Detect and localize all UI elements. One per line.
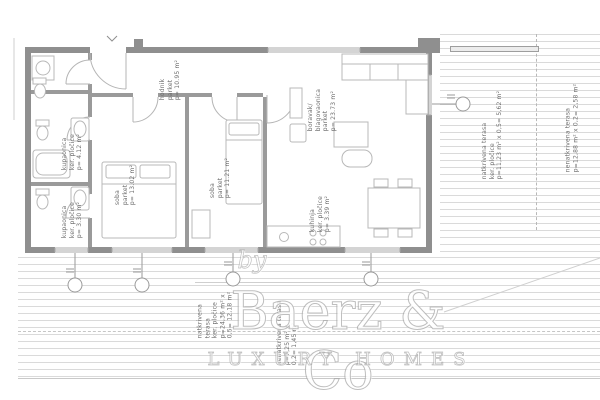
marker-text-ticks <box>66 269 74 272</box>
wall-segment <box>400 247 432 253</box>
wall-segment <box>172 247 205 253</box>
wall-segment <box>88 218 92 247</box>
toilet-tank <box>36 120 49 126</box>
shutter-marker <box>432 95 470 111</box>
room-area: p= 23.73 m² <box>330 89 338 131</box>
chair <box>374 229 388 237</box>
marker-circle <box>68 278 82 292</box>
sofa-back <box>342 54 428 64</box>
corner-pillar <box>418 38 440 53</box>
stove-burner <box>310 239 316 245</box>
room-area: p= 10.95 m² <box>174 60 182 100</box>
desk <box>192 210 210 238</box>
room-name: kupaonica <box>61 134 69 170</box>
single-bed <box>226 120 262 204</box>
room-label-hodnik: hodnik parket p= 10.95 m² <box>159 60 182 100</box>
label-terasa-right-open: nenatkrivena terasa p=12,88 m² x 0,2= 2,… <box>565 84 580 173</box>
armchair <box>290 124 306 142</box>
washer-drum <box>36 61 50 75</box>
room-floor: parket <box>121 165 129 205</box>
shutter-marker <box>66 253 82 292</box>
wall-segment <box>25 47 31 253</box>
wall-segment <box>25 247 55 253</box>
toilet <box>36 120 49 140</box>
sofa <box>342 54 428 114</box>
dining-set <box>368 179 420 237</box>
watermark-by: by <box>222 246 282 274</box>
chair <box>398 179 412 187</box>
room-floor: ker. pločice <box>68 202 76 238</box>
pillow <box>229 123 259 135</box>
toilet-tank <box>33 78 46 84</box>
toilet <box>33 78 46 98</box>
room-floor: parket <box>216 158 224 198</box>
room-name: kuhinja <box>309 196 317 232</box>
room-name-2: blagovaonica <box>315 89 323 131</box>
room-name: soba <box>114 165 122 205</box>
room-label-soba-1: soba parket p= 13.02 m² <box>114 165 137 205</box>
room-label-kupaonica-2: kupaonica ker. pločice p= 3.30 m² <box>61 202 84 238</box>
room-name: soba <box>209 158 217 198</box>
toilet-bowl <box>37 126 48 140</box>
wall-segment <box>360 47 420 53</box>
washing-machine <box>32 56 54 80</box>
wall-segment <box>88 84 92 117</box>
kitchen-sink <box>280 233 289 242</box>
wall-segment <box>126 47 268 53</box>
room-area: p= 13.02 m² <box>129 165 137 205</box>
room-name: kupaonica <box>61 202 69 238</box>
room-floor: ker. pločice <box>316 196 324 232</box>
wall-segment <box>31 182 88 186</box>
tv-stand <box>290 88 302 118</box>
chimney-block <box>134 39 143 47</box>
door-swing <box>133 97 158 122</box>
terrace-area: p=12,88 m² x 0,2= 2,58 m² <box>572 84 580 173</box>
marker-circle <box>135 278 149 292</box>
wall-segment <box>185 97 189 247</box>
room-area: p= 3.30 m² <box>76 202 84 238</box>
shutter-marker <box>133 253 149 292</box>
marker-text-ticks <box>447 95 455 98</box>
marker-text-ticks <box>133 269 141 272</box>
room-floor: parket <box>322 89 330 131</box>
terrace-area: p=11,23 m² x 0,5= 5,62 m² <box>496 91 504 180</box>
door-swing <box>212 97 237 122</box>
terrace-name: natkrivena terasa <box>481 91 489 180</box>
room-name: boravak/ <box>307 89 315 131</box>
pillow <box>140 165 170 178</box>
coffee-table <box>334 122 368 147</box>
wall-segment <box>263 97 267 247</box>
sofa-seat <box>342 64 428 80</box>
watermark-brand: Baerz & Co <box>188 282 488 400</box>
room-area: p= 4.12 m² <box>76 134 84 170</box>
label-terasa-right-covered: natkrivena terasa ker. pločice p=11,23 m… <box>481 91 504 180</box>
room-area: p= 11.21 m² <box>224 158 232 198</box>
stove-burner <box>320 239 326 245</box>
terrace-floor: ker. pločice <box>488 91 496 180</box>
door-swing <box>66 60 90 84</box>
marker-text-ticks <box>362 262 370 265</box>
wall-segment <box>237 93 263 97</box>
chair <box>374 179 388 187</box>
entry-marker-chevron <box>107 36 117 41</box>
toilet-bowl <box>35 84 46 98</box>
terrace-name: nenatkrivena terasa <box>565 84 573 173</box>
room-label-soba-2: soba parket p= 11.21 m² <box>209 158 232 198</box>
entrance-door-swing <box>90 53 126 89</box>
watermark-tagline: LUXURY HOMES <box>196 349 486 370</box>
room-floor: parket <box>166 60 174 100</box>
wall-segment <box>426 115 432 253</box>
toilet-bowl <box>37 195 48 209</box>
wall-segment <box>88 247 112 253</box>
wall-segment <box>92 93 133 97</box>
room-area: p= 3.39 m² <box>324 196 332 232</box>
floor-plan-sheet: hodnik parket p= 10.95 m² kupaonica ker.… <box>0 0 600 400</box>
toilet <box>36 189 49 209</box>
lounge-chair <box>342 150 372 167</box>
room-label-kupaonica-1: kupaonica ker. pločice p= 4.12 m² <box>61 134 84 170</box>
sofa-chaise <box>406 80 428 114</box>
wall-segment <box>25 47 90 53</box>
toilet-tank <box>36 189 49 195</box>
room-floor: ker. pločice <box>68 134 76 170</box>
room-name: hodnik <box>159 60 167 100</box>
wall-segment <box>88 140 92 194</box>
dining-table <box>368 188 420 228</box>
chair <box>398 229 412 237</box>
room-label-kuhinja: kuhinja ker. pločice p= 3.39 m² <box>309 196 332 232</box>
marker-circle <box>456 97 470 111</box>
room-label-boravak: boravak/ blagovaonica parket p= 23.73 m² <box>307 89 337 131</box>
